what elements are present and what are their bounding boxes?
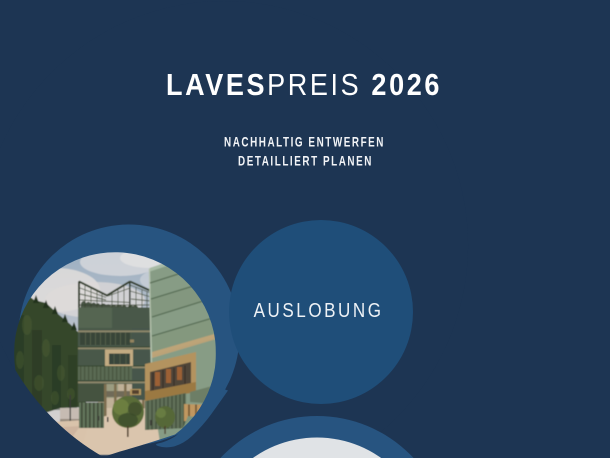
svg-text:LAVESPREIS 2026: LAVESPREIS 2026 bbox=[166, 67, 442, 102]
svg-text:DETAILLIERT PLANEN: DETAILLIERT PLANEN bbox=[238, 153, 373, 169]
svg-text:AUSLOBUNG: AUSLOBUNG bbox=[254, 300, 384, 322]
svg-text:NACHHALTIG ENTWERFEN: NACHHALTIG ENTWERFEN bbox=[224, 133, 385, 149]
